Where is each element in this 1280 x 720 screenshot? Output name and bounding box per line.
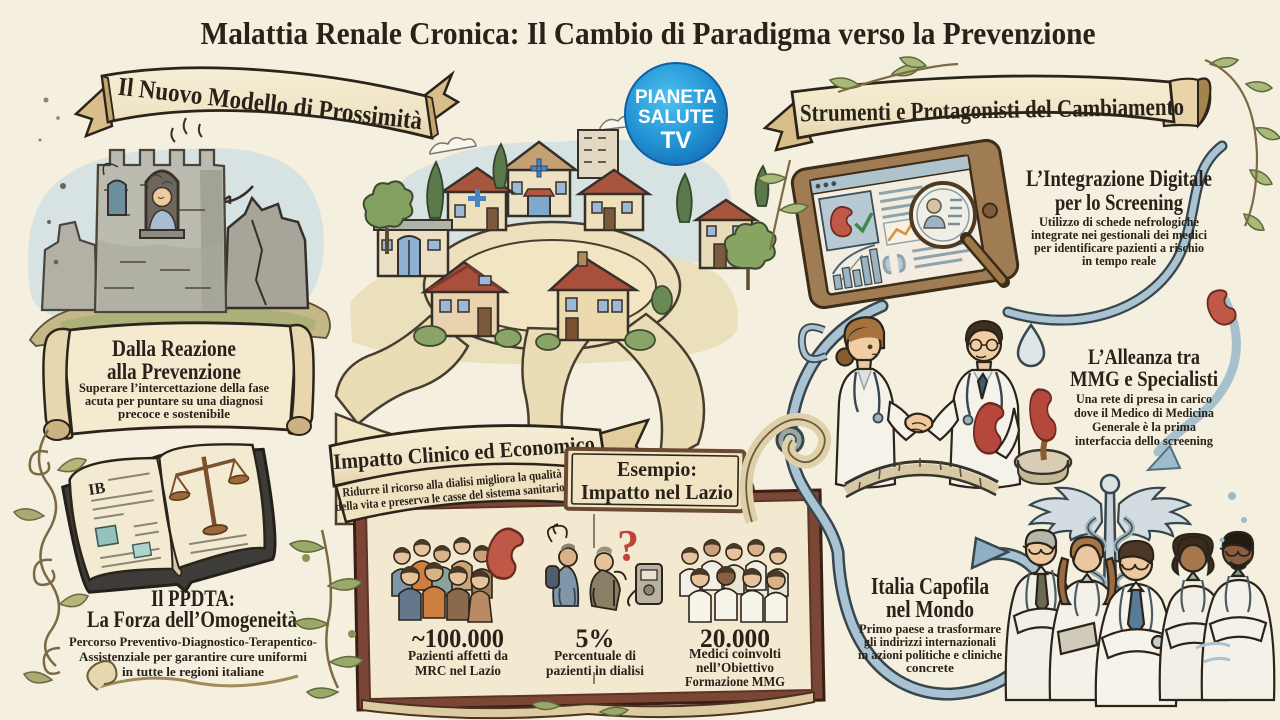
svg-text:acuta per puntare su una diagn: acuta per puntare su una diagnosi	[85, 394, 264, 408]
svg-text:pazienti in dialisi: pazienti in dialisi	[546, 663, 644, 678]
svg-text:nell’Obiettivo: nell’Obiettivo	[696, 660, 774, 675]
svg-text:MRC nel Lazio: MRC nel Lazio	[415, 663, 501, 678]
svg-text:SALUTE: SALUTE	[638, 107, 714, 128]
svg-text:Pazienti affetti da: Pazienti affetti da	[408, 648, 508, 663]
svg-text:Impatto nel Lazio: Impatto nel Lazio	[581, 480, 733, 504]
svg-text:dove il Medico di Medicina: dove il Medico di Medicina	[1074, 406, 1215, 420]
svg-text:IB: IB	[87, 480, 107, 499]
svg-text:Generale è la prima: Generale è la prima	[1092, 420, 1197, 434]
svg-text:?: ?	[617, 521, 639, 570]
svg-text:Malattia Renale Cronica: Il Ca: Malattia Renale Cronica: Il Cambio di Pa…	[201, 15, 1096, 51]
svg-text:Percorso Preventivo-Diagnostic: Percorso Preventivo-Diagnostico-Terapent…	[69, 634, 317, 649]
svg-text:concrete: concrete	[906, 660, 954, 675]
svg-text:in tutte le regioni italiane: in tutte le regioni italiane	[122, 664, 264, 679]
svg-text:Medici coinvolti: Medici coinvolti	[689, 646, 781, 661]
svg-text:Utilizzo di schede nefrologich: Utilizzo di schede nefrologiche	[1039, 215, 1199, 229]
svg-text:La Forza dell’Omogeneità: La Forza dell’Omogeneità	[87, 607, 297, 632]
svg-text:Dalla Reazione: Dalla Reazione	[112, 336, 236, 361]
svg-text:nel Mondo: nel Mondo	[886, 597, 974, 623]
svg-text:in tempo reale: in tempo reale	[1082, 254, 1156, 268]
svg-text:precoce e sostenibile: precoce e sostenibile	[118, 407, 230, 421]
svg-text:L’Integrazione Digitale: L’Integrazione Digitale	[1026, 166, 1212, 191]
svg-text:Una rete di presa in carico: Una rete di presa in carico	[1076, 392, 1212, 406]
svg-text:Percentuale di: Percentuale di	[554, 648, 636, 663]
svg-text:Assistenziale per garantire cu: Assistenziale per garantire cure uniform…	[79, 649, 307, 664]
svg-text:MMG e Specialisti: MMG e Specialisti	[1070, 366, 1218, 391]
svg-text:integrate nei gestionali dei m: integrate nei gestionali dei medici	[1031, 228, 1207, 242]
svg-text:Formazione MMG: Formazione MMG	[685, 674, 785, 689]
svg-text:Superare l’intercettazione del: Superare l’intercettazione della fase	[79, 381, 269, 395]
svg-text:interfaccia dello screening: interfaccia dello screening	[1075, 434, 1214, 448]
svg-text:PIANETA: PIANETA	[635, 87, 717, 108]
svg-text:per lo Screening: per lo Screening	[1055, 190, 1183, 215]
svg-text:per identificare pazienti a ri: per identificare pazienti a rischio	[1034, 241, 1204, 255]
svg-text:Esempio:: Esempio:	[617, 457, 697, 481]
svg-text:TV: TV	[661, 127, 692, 154]
